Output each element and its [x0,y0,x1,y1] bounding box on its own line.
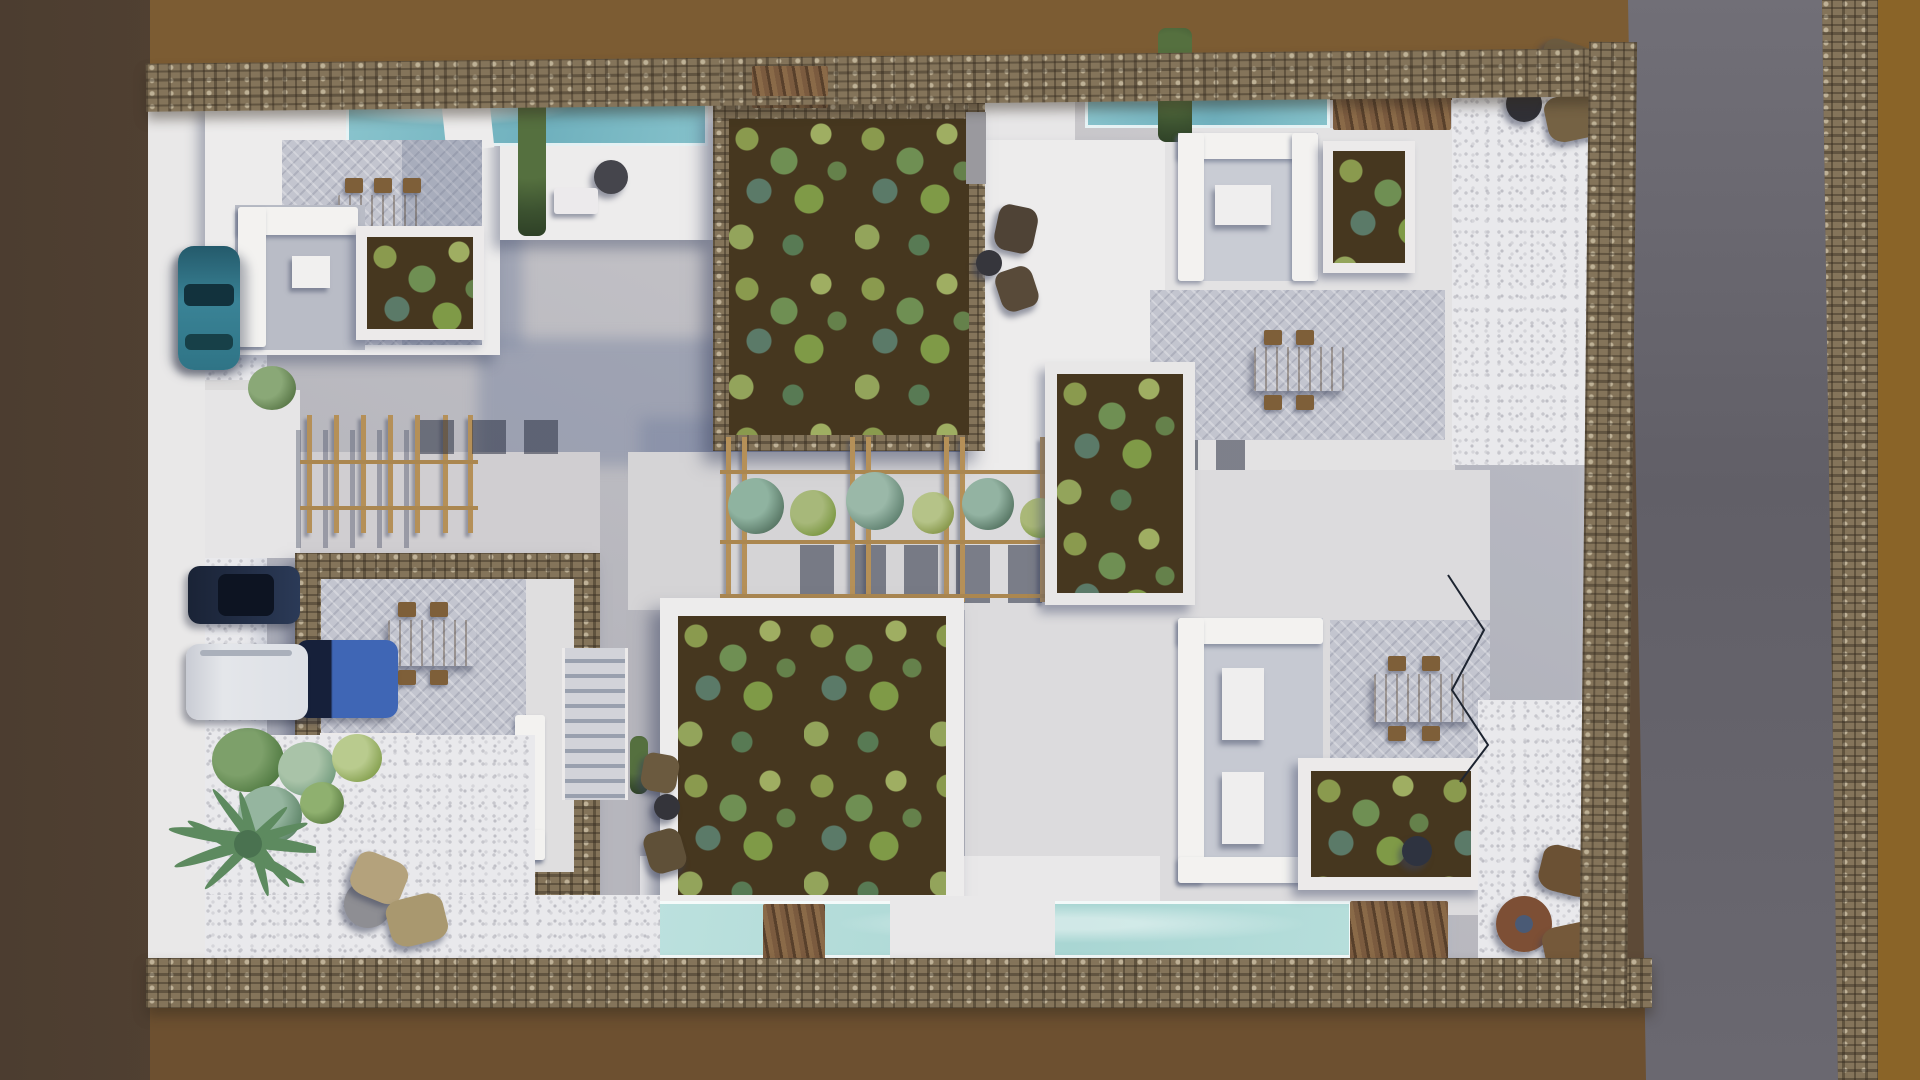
pergola-center-rail [720,540,1065,544]
pool-timber-screen [763,904,825,964]
pouf [639,751,681,795]
coffee-table [1215,185,1271,225]
west-block [205,390,300,558]
green-patch-planting [1333,151,1405,263]
side-table [1402,836,1432,866]
side-table [654,794,680,820]
dining-chair [1422,726,1440,741]
plaza-north-of-courtyard [300,452,600,554]
lounge-sofa [1178,133,1204,281]
pool-timber-screen [1350,901,1448,963]
shrub [248,366,296,410]
coffee-table [292,256,330,288]
dining-chair [1264,395,1282,410]
van-roof-line [200,650,292,656]
pergola-shadow [404,430,409,548]
dining-chair [398,602,416,617]
dining-chair [345,178,363,193]
pergola-shrub [790,490,836,536]
green-patch [1045,362,1195,605]
roof-skylight [966,112,986,184]
dining-table [1254,347,1344,391]
pergola-center-beam [726,437,731,602]
green-roof-center [660,598,964,913]
pergola-west-beam [307,415,312,533]
pergola-shrub [846,472,904,530]
stone-wall-bottom [146,958,1652,1008]
garden-shrub [332,734,382,782]
pergola-center-rail [720,470,1065,474]
dining-chair [430,602,448,617]
green-roof-planting [729,119,969,435]
navy-suv [188,566,300,624]
car-rear-window [185,334,233,350]
dining-chair [1264,330,1282,345]
teal-car [178,246,240,370]
dining-chair [1296,395,1314,410]
north-gate-overlay [752,66,828,96]
wire-fence [1440,560,1550,790]
lounge-sofa [1178,618,1204,883]
sun-lounger [554,188,598,214]
green-patch [356,226,484,340]
pergola-shadow [296,430,301,548]
coffee-table [1222,772,1264,844]
green-roof-planting [678,616,946,895]
pergola-west-rail [300,506,478,510]
green-patch-planting [1057,374,1183,593]
pergola-shadow [377,430,382,548]
pool-divider-deck [890,896,1055,960]
dining-chair [1296,330,1314,345]
green-patch-planting [367,237,473,329]
green-patch [1323,141,1415,273]
pergola-west-beam [388,415,393,533]
car-windshield [184,284,234,306]
pergola-shrub [962,478,1014,530]
pergola-west-beam [334,415,339,533]
pergola-west-rail [300,460,478,464]
agave-plant [96,760,316,930]
pergola-shadow [323,430,328,548]
dining-chair [374,178,392,193]
green-roof-north [713,103,985,451]
blue-car [296,640,398,718]
dining-chair [1422,656,1440,671]
window-shadow-grid [420,420,562,454]
pergola-shrub [728,478,784,534]
pergola-shadow [350,430,355,548]
parasol-table [594,160,628,194]
dining-table [388,620,476,666]
white-van [186,644,308,720]
dining-chair [398,670,416,685]
dining-chair [430,670,448,685]
earth-bottom [150,1003,1655,1080]
aerial-site-render [0,0,1920,1080]
dining-chair [1388,726,1406,741]
stone-wall-east [1579,42,1637,1008]
pergola-west-beam [361,415,366,533]
external-stairs [562,648,628,800]
earth-right [1878,0,1920,1080]
dining-chair [1388,656,1406,671]
pergola-center-beam [960,437,965,602]
suv-windows [218,574,274,616]
lounge-sofa [1292,133,1318,281]
pergola-shrub [912,492,954,534]
dining-chair [403,178,421,193]
side-table [976,250,1002,276]
coffee-table [1222,668,1264,740]
